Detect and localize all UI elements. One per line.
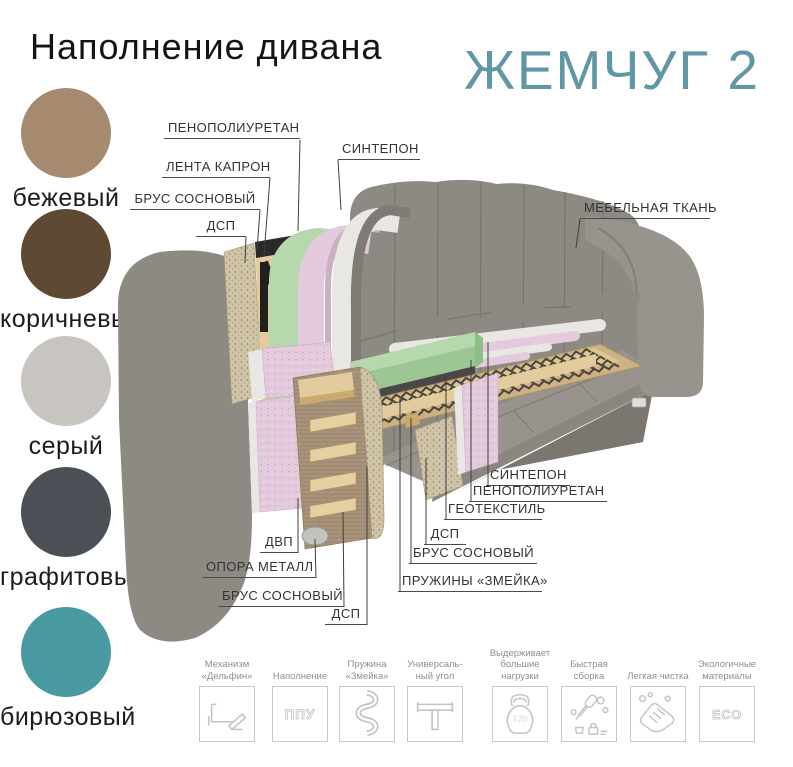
eco-icon: ECO [700,687,754,741]
label-lenta-kapron: ЛЕНТА КАПРОН [162,159,270,178]
feature-box [407,686,463,742]
feature-box: 120 [492,686,548,742]
label-opora-metall: ОПОРА МЕТАЛЛ [202,559,316,578]
seat-pink-wrap [462,373,498,472]
feature-box [630,686,686,742]
label-pruzhiny-zmeika: ПРУЖИНЫ «ЗМЕЙКА» [398,573,542,592]
infographic-page: Наполнение дивана ЖЕМЧУГ 2 бежевый корич… [0,0,793,767]
feature-box: ППУ [272,686,328,742]
quick-assembly-icon [562,687,616,741]
feature-universal-corner: Универсаль- ный угол [401,652,469,744]
easy-cleaning-icon [631,687,685,741]
feature-box [339,686,395,742]
svg-text:120: 120 [513,714,528,724]
label-penopoliuretan-seat: ПЕНОПОЛИУРЕТАН [469,483,607,502]
snake-spring-icon [340,687,394,741]
leader-pu-top [298,140,300,231]
leader-sintepon-top [338,160,341,210]
sofa-leg [632,398,646,407]
feature-box [199,686,255,742]
feature-label: Механизм «Дельфин» [185,652,269,682]
feature-eco-materials: Экологичные материалы ECO [693,652,761,744]
feature-easy-cleaning: Легкая чистка [624,652,692,744]
label-mebelnaya-tkan: МЕБЕЛЬНАЯ ТКАНЬ [580,200,710,219]
label-brus-top: БРУС СОСНОВЫЙ [130,191,260,210]
label-dsp-seat: ДСП [424,526,466,545]
feature-dolphin-mechanism: Механизм «Дельфин» [193,652,261,744]
ppu-icon: ППУ [273,687,327,741]
feature-box: ECO [699,686,755,742]
label-dsp-arm: ДСП [325,606,367,625]
seat-foam-green-bar-end [475,332,483,368]
feature-quick-assembly: Быстрая сборка [555,652,623,744]
label-brus-seat: БРУС СОСНОВЫЙ [409,545,537,564]
svg-text:ППУ: ППУ [285,707,316,722]
feature-heavy-load: Выдерживает большие нагрузки 120 [486,652,554,744]
label-sintepon-top: СИНТЕПОН [338,141,420,160]
feature-box [561,686,617,742]
kettlebell-icon: 120 [493,687,547,741]
feature-label: Экологичные материалы [685,652,769,682]
label-penopoliuretan-top: ПЕНОПОЛИУРЕТАН [164,120,300,139]
label-dsp-top: ДСП [196,218,246,237]
label-geotextil: ГЕОТЕКСТИЛЬ [444,501,542,520]
feature-filling: Наполнение ППУ [266,652,334,744]
feature-label: Универсаль- ный угол [393,652,477,682]
svg-text:ECO: ECO [712,708,742,722]
label-brus-arm: БРУС СОСНОВЫЙ [218,588,344,607]
label-dvp: ДВП [260,534,298,553]
dolphin-mechanism-icon [200,687,254,741]
feature-snake-spring: Пружина «Змейка» [333,652,401,744]
universal-corner-icon [408,687,462,741]
